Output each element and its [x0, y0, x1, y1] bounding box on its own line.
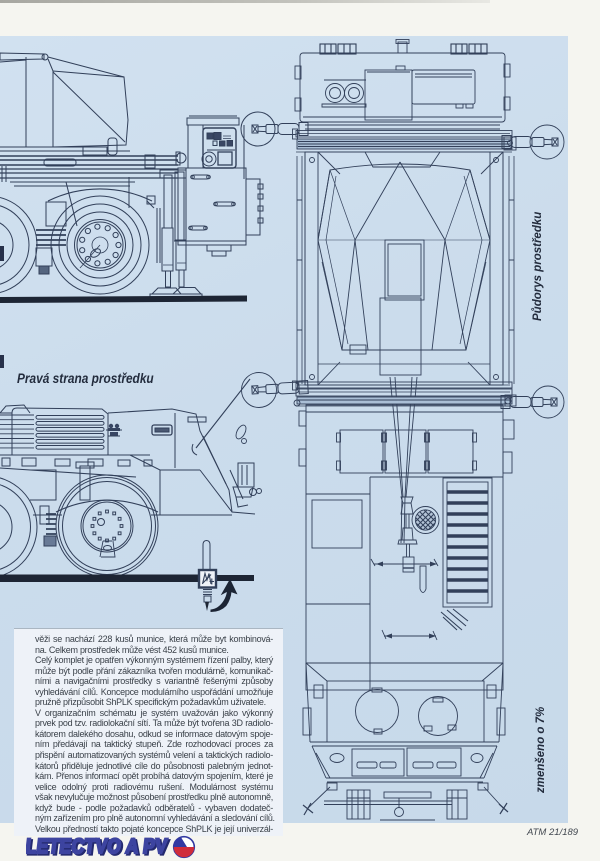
- svg-text:LETECTVO A PV: LETECTVO A PV: [26, 836, 168, 859]
